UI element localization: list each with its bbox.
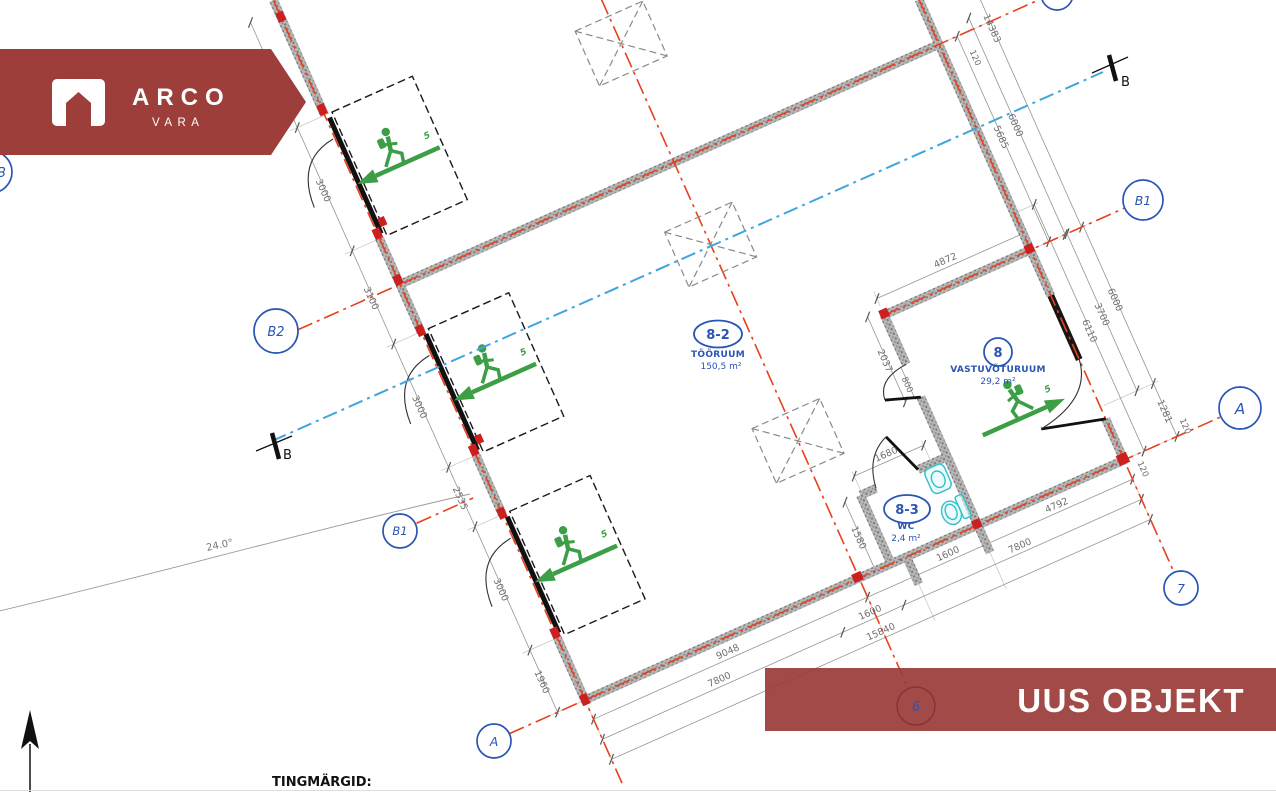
angle-arc	[0, 494, 470, 612]
grid-bubble-label: B1	[1135, 193, 1152, 208]
grid-bubble-label: B1	[392, 524, 407, 538]
dimension-label: 15840	[865, 621, 897, 643]
room-area: 150,5 m²	[700, 362, 741, 372]
room-label-tooruum: 8-2 TÖÖRUUM 150,5 m²	[691, 321, 745, 373]
dimension-label: 3100	[361, 285, 381, 312]
room-name: VASTUVÕTURUUM	[950, 363, 1046, 375]
dimension-label: 6110	[1079, 318, 1099, 345]
dimension-label: 6000	[1005, 112, 1025, 139]
grid-bubble-label: 7	[1177, 581, 1185, 596]
room-area: 29,2 m²	[980, 377, 1016, 387]
grid-bubble-label: B	[0, 166, 6, 181]
extension-lines	[290, 0, 1215, 779]
dimension-label: 3000	[313, 177, 333, 204]
overlay-banner: 6 UUS OBJEKT	[765, 668, 1276, 731]
door-leaves	[330, 118, 559, 633]
room-id: 8	[993, 346, 1002, 361]
room-id: 8-3	[895, 503, 919, 518]
dimension-label: 3000	[490, 577, 510, 604]
dimension-label: 5685	[991, 124, 1011, 151]
room-area: 2,4 m²	[891, 534, 921, 544]
walker-count-label: 5	[422, 131, 432, 143]
grid-bubble-label: A	[1234, 400, 1245, 418]
north-arrow-icon	[21, 710, 39, 792]
dimension-ticks	[245, 0, 1208, 777]
angle-label: 24.0°	[205, 538, 234, 554]
legend-heading: TINGMÄRGID:	[272, 774, 372, 790]
section-mark-top: B	[1092, 55, 1130, 90]
door-clearance-boxes	[332, 76, 645, 634]
floor-plan-canvas: 5 5 5 5 3000 3100 3000 2535 3000 1960 90…	[0, 0, 1276, 792]
dimension-label: 2037	[875, 348, 895, 375]
section-label: B	[283, 448, 292, 463]
dimension-label: 1960	[532, 669, 552, 696]
logo-banner: ARCO VARA	[0, 49, 306, 155]
dimension-label: 6000	[1105, 287, 1125, 314]
room-label-vastuvoturuum: 8 VASTUVÕTURUUM 29,2 m²	[950, 338, 1046, 387]
dimension-label: 1281	[1154, 398, 1174, 425]
dimension-label: 120	[967, 49, 983, 68]
dimension-label: 120	[1135, 460, 1151, 479]
grid-bubble-label: A	[489, 734, 499, 749]
room-label-wc: 8-3 WC 2,4 m²	[884, 495, 930, 544]
dimension-label: 3000	[409, 394, 429, 421]
room-name: TÖÖRUUM	[691, 349, 745, 360]
room-id: 8-2	[706, 328, 730, 343]
grid-bubble-top-partial	[1041, 0, 1073, 10]
grid-bubble-label: 6	[912, 700, 920, 715]
room-name: WC	[897, 522, 914, 532]
dimension-label: 120	[1177, 417, 1193, 436]
section-label: B	[1121, 75, 1130, 90]
walker-count-label: 5	[600, 529, 610, 541]
floor-plan-page: 5 5 5 5 3000 3100 3000 2535 3000 1960 90…	[0, 0, 1276, 792]
walker-count-label: 5	[1043, 384, 1053, 396]
walker-count-label: 5	[519, 347, 529, 359]
logo-name: ARCO	[132, 84, 231, 111]
grid-bubble-label: B2	[267, 325, 284, 340]
arco-house-icon	[52, 79, 105, 126]
logo-subname: VARA	[152, 117, 204, 129]
overlay-title: UUS OBJEKT	[1017, 682, 1245, 719]
dimension-label: 3700	[1091, 301, 1111, 328]
dimension-label: 1580	[848, 525, 868, 552]
section-mark-bottom: B	[256, 433, 292, 463]
